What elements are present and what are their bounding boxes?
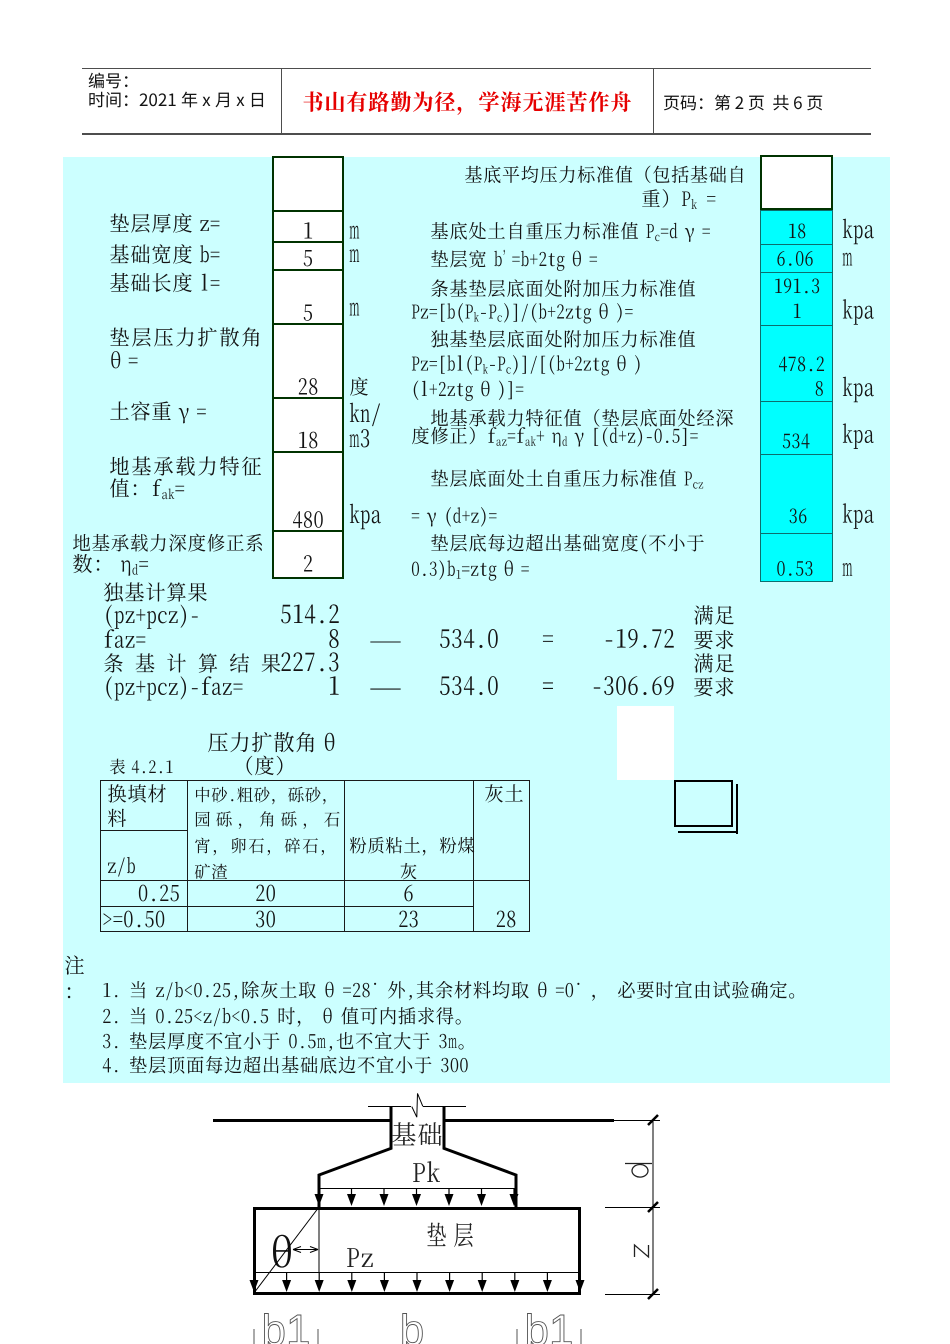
svg-text:b: b [400, 1306, 424, 1344]
svg-text:b1: b1 [262, 1306, 311, 1344]
svg-text:b1: b1 [525, 1306, 574, 1344]
